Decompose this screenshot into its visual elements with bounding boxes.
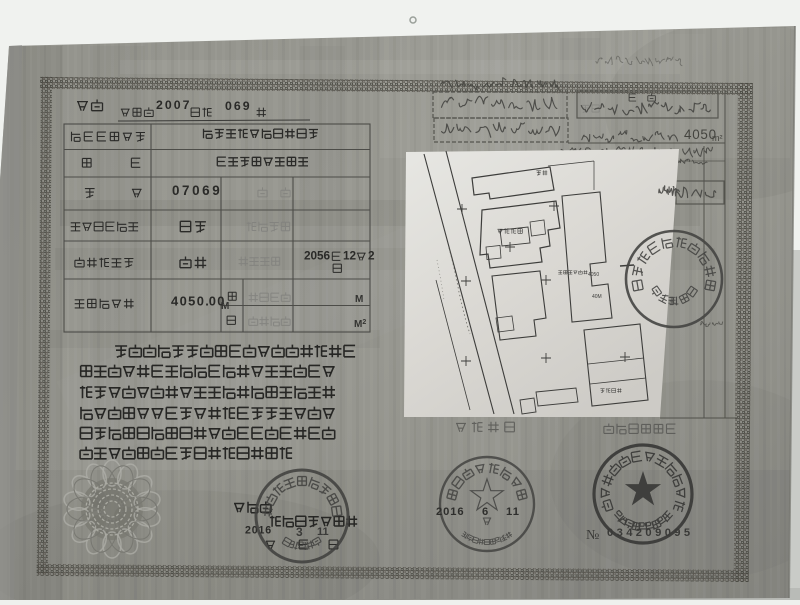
svg-text:2007: 2007 [156,98,190,112]
svg-text:11: 11 [506,506,519,518]
svg-text:034209095: 034209095 [607,527,690,539]
svg-text:m²: m² [712,133,723,143]
svg-text:№: № [586,528,599,543]
svg-text:11: 11 [317,526,329,538]
svg-text:2016: 2016 [436,506,464,518]
svg-text:M: M [221,301,229,312]
svg-text:2056: 2056 [304,249,331,263]
svg-text:6: 6 [482,506,488,518]
svg-text:07069: 07069 [172,183,220,198]
svg-text:M: M [355,294,363,305]
svg-text:4050.00: 4050.00 [171,294,224,309]
svg-text:40M: 40M [592,294,602,300]
svg-text:3: 3 [296,525,303,539]
svg-text:4050: 4050 [588,272,599,278]
svg-text:069: 069 [225,99,250,113]
svg-text:2: 2 [368,249,375,263]
svg-text:12: 12 [343,249,357,263]
